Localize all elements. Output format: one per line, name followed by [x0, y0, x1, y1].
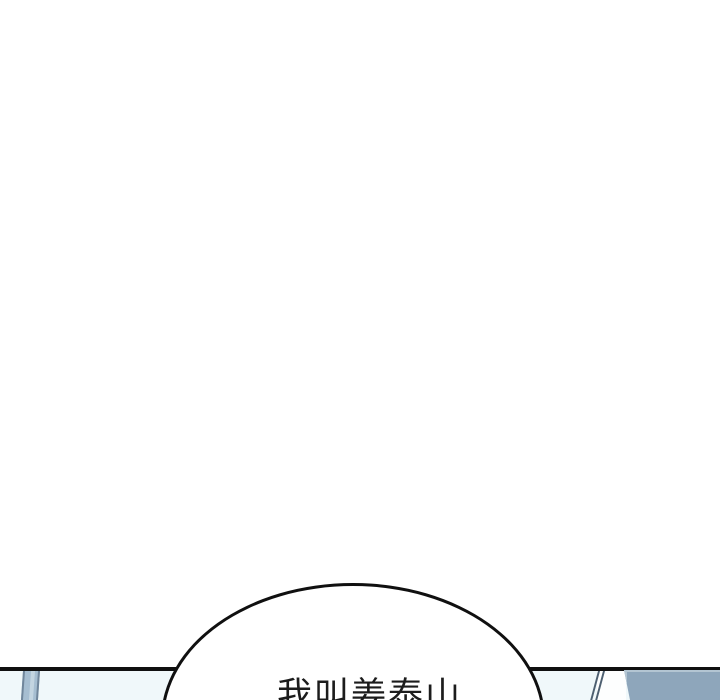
window-pillar-highlight [29, 671, 35, 700]
window-pillar [21, 671, 40, 700]
speech-bubble-text: 我叫姜泰山 [277, 675, 462, 700]
comic-panel: 我叫姜泰山 [0, 0, 720, 700]
wall-slab [624, 670, 720, 700]
